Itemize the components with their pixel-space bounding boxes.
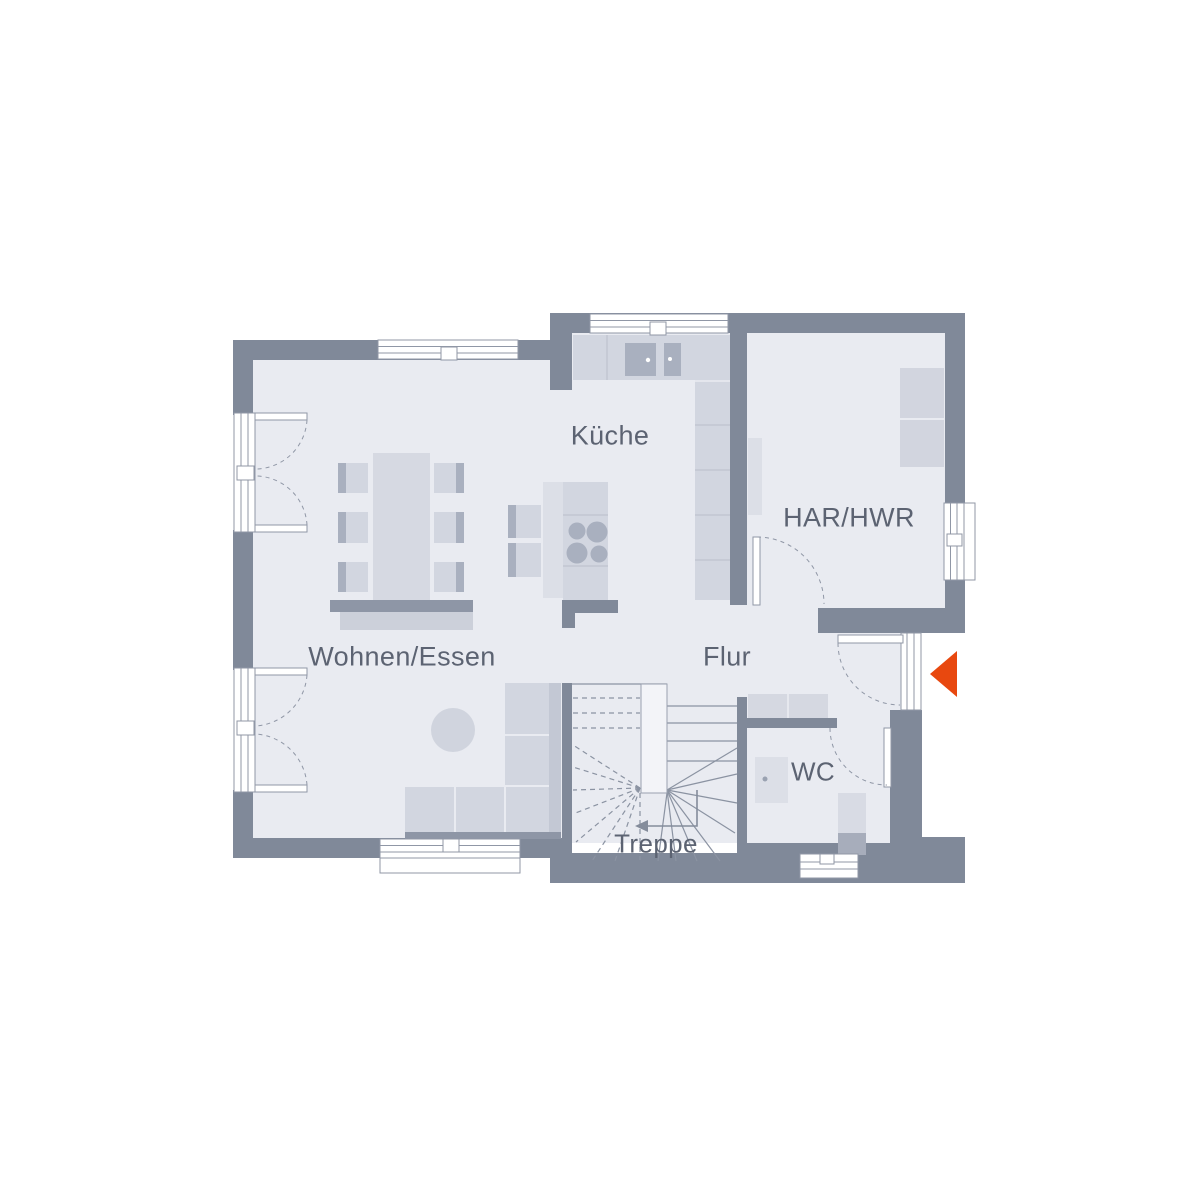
kitchen-island-bar [543,482,563,598]
dining-chair-back [456,512,464,543]
lowboard-front [340,612,473,630]
wall-kitchen-har [730,333,747,605]
wall [818,608,965,633]
kitchen-counter-right [695,380,730,600]
dining-table [373,453,430,600]
dining-chair-back [338,562,346,592]
kitchen-island [563,482,608,600]
toilet-cistern [838,833,866,855]
dryer [900,420,944,467]
dining-chair-back [338,512,346,543]
room-label-flur: Flur [703,642,751,673]
lowboard [330,600,473,612]
wall [233,340,253,415]
room-label-har-hwr: HAR/HWR [783,503,915,534]
sofa-backrest [549,683,561,832]
entrance-direction-arrow [930,651,957,697]
wall [550,313,965,333]
dining-chair-back [338,463,346,493]
wall-wc-top [737,718,837,728]
wall [233,340,572,360]
bar-stool-back [508,505,516,538]
wall [890,710,922,843]
wall [233,530,253,670]
room-label-kueche: Küche [571,421,650,452]
wall [890,837,965,883]
coffee-table [431,708,475,752]
sofa-chaise [505,683,549,734]
washbasin [755,757,788,803]
kitchen-sink [625,343,656,376]
wall [233,838,572,858]
sofa-seat [405,787,454,832]
toilet [838,793,866,833]
dining-chair-back [456,562,464,592]
dining-chair-back [456,463,464,493]
kitchen-sink [664,343,681,376]
sofa-chaise [505,736,549,785]
room-label-wohnen-essen: Wohnen/Essen [308,642,495,673]
wall [945,313,965,608]
room-label-wc: WC [791,757,835,788]
floor-plan: Küche HAR/HWR Wohnen/Essen Flur WC Trepp… [0,0,1200,1200]
hall-sideboard [748,694,828,718]
room-label-treppe: Treppe [614,829,698,860]
wall-stairwell-left [562,683,572,863]
sofa-seat [506,787,549,832]
washer [900,368,944,418]
sofa-base [405,832,561,839]
wall-island-stub [562,600,575,628]
har-cabinet [748,438,762,515]
bar-stool-back [508,543,516,577]
sofa-seat [456,787,504,832]
